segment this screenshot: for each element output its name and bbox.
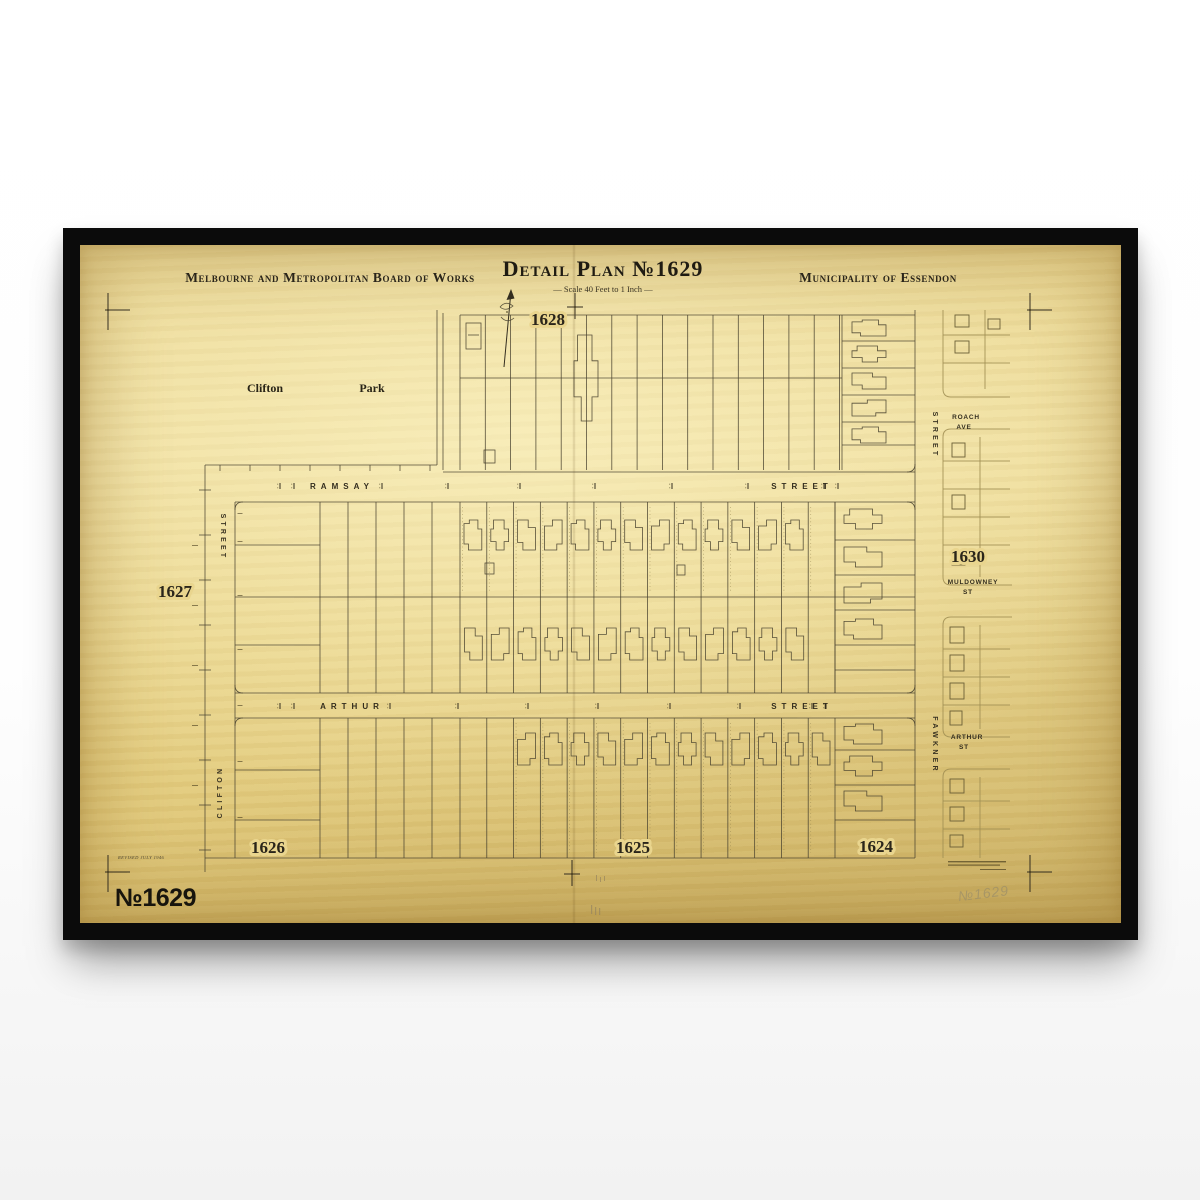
street-label-arthur-right-st: ST [959,744,969,751]
street-label-right-street: STREET [931,412,938,459]
street-label-muldowney: MULDOWNEY [948,579,999,586]
street-label-arthur: ARTHUR [320,702,384,711]
street-label-fawkner-street: FAWKNER [931,716,938,773]
adjoining-plan-1630: 1630 [951,547,985,566]
adjoining-plan-1625: 1625 [616,838,650,857]
adjoining-plan-1624: 1624 [859,837,894,856]
street-label-left-street: STREET [219,514,226,561]
revision-note: REVISED JULY 1946 [117,855,165,860]
adjoining-plan-1628: 1628 [531,310,565,329]
street-label-clifton-street: CLIFTON [217,766,224,819]
adjoining-plan-1626: 1626 [251,838,285,857]
picture-frame: Melbourne and Metropolitan Board of Work… [63,228,1138,940]
park-label-clifton: Clifton [247,381,283,395]
street-label-ramsay: RAMSAY [310,482,374,491]
scale-note: — Scale 40 Feet to 1 Inch — [552,284,653,294]
adjoining-plan-1627: 1627 [158,582,193,601]
park-label-park: Park [359,381,385,395]
plan-number-stamp: №1629 [115,884,196,912]
street-label-ramsay-suffix: STREET [771,482,833,491]
plan-number-pencil: №1629 [957,882,1010,904]
map-paper: Melbourne and Metropolitan Board of Work… [80,245,1121,923]
street-label-arthur-right: ARTHUR [951,734,983,741]
detail-plan-map: Melbourne and Metropolitan Board of Work… [80,245,1121,923]
municipality-heading: Municipality of Essendon [799,270,957,285]
board-of-works-heading: Melbourne and Metropolitan Board of Work… [185,270,475,285]
street-label-muldowney-st: ST [963,589,973,596]
street-label-arthur-suffix: STREET [771,702,833,711]
street-label-roach-ave: AVE [956,424,971,431]
map-linework [105,245,1052,923]
plan-title: Detail Plan №1629 [503,256,704,281]
gallery-wall: Melbourne and Metropolitan Board of Work… [0,0,1200,1200]
street-label-roach: ROACH [952,414,980,421]
